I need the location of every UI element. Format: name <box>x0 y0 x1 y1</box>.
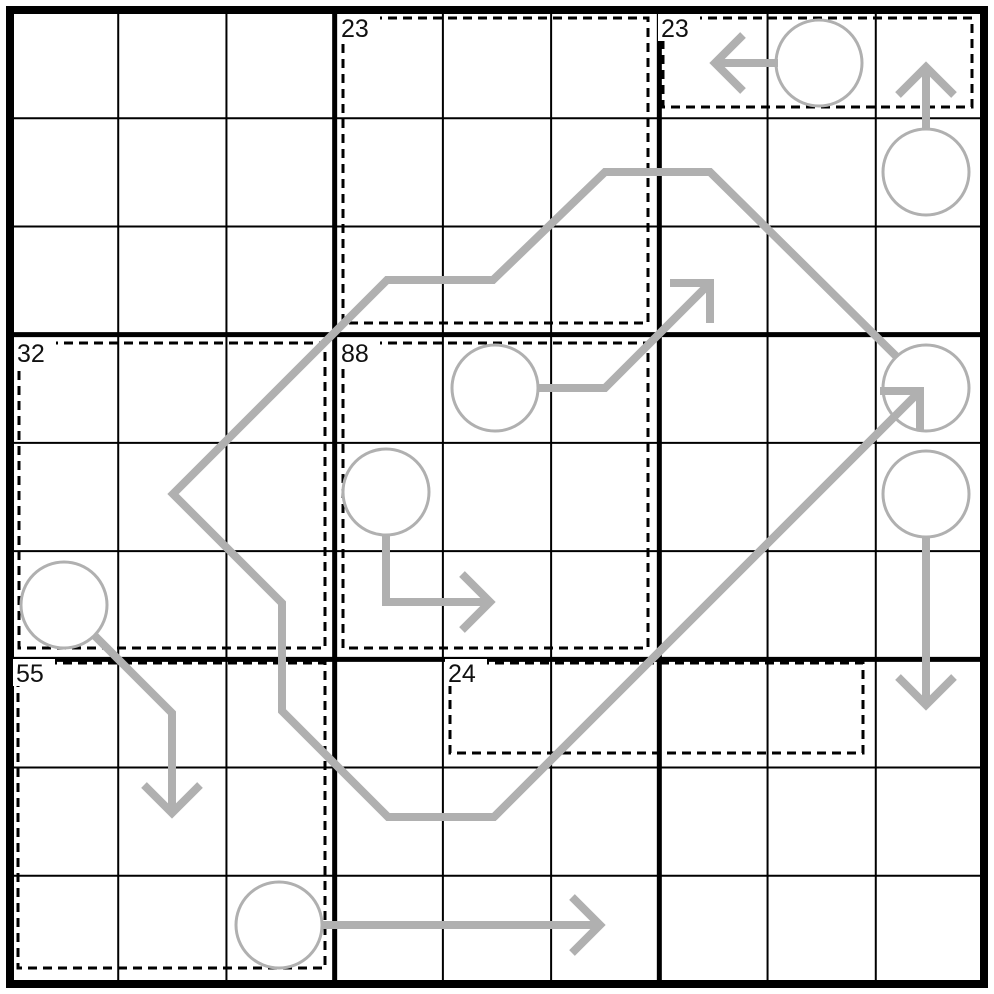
cell-r8c3[interactable] <box>226 768 334 876</box>
cell-r4c6[interactable] <box>551 335 659 443</box>
cell-r9c2[interactable] <box>118 876 226 984</box>
cell-r2c7[interactable] <box>659 118 767 226</box>
cell-r4c8[interactable] <box>768 335 876 443</box>
cell-r4c4[interactable] <box>335 335 443 443</box>
cell-r8c9[interactable] <box>876 768 984 876</box>
cell-r8c1[interactable] <box>10 768 118 876</box>
cell-r1c1[interactable] <box>10 10 118 118</box>
cell-r5c5[interactable] <box>443 443 551 551</box>
cell-r3c2[interactable] <box>118 226 226 334</box>
cell-r5c6[interactable] <box>551 443 659 551</box>
cell-r7c8[interactable] <box>768 659 876 767</box>
cell-r9c3[interactable] <box>226 876 334 984</box>
cell-r7c9[interactable] <box>876 659 984 767</box>
cell-r3c4[interactable] <box>335 226 443 334</box>
cell-r6c9[interactable] <box>876 551 984 659</box>
cell-r2c4[interactable] <box>335 118 443 226</box>
cell-r5c4[interactable] <box>335 443 443 551</box>
cell-r7c3[interactable] <box>226 659 334 767</box>
cell-r9c4[interactable] <box>335 876 443 984</box>
cell-r7c6[interactable] <box>551 659 659 767</box>
cell-r3c3[interactable] <box>226 226 334 334</box>
cell-r5c3[interactable] <box>226 443 334 551</box>
cell-r9c5[interactable] <box>443 876 551 984</box>
cell-r4c7[interactable] <box>659 335 767 443</box>
cell-r4c2[interactable] <box>118 335 226 443</box>
cell-r9c8[interactable] <box>768 876 876 984</box>
cell-r2c9[interactable] <box>876 118 984 226</box>
cell-r6c1[interactable] <box>10 551 118 659</box>
cell-r2c8[interactable] <box>768 118 876 226</box>
cell-r3c7[interactable] <box>659 226 767 334</box>
cell-r6c3[interactable] <box>226 551 334 659</box>
cell-r8c7[interactable] <box>659 768 767 876</box>
cell-r9c1[interactable] <box>10 876 118 984</box>
cell-r5c9[interactable] <box>876 443 984 551</box>
cell-r8c2[interactable] <box>118 768 226 876</box>
cell-r7c7[interactable] <box>659 659 767 767</box>
cell-r3c5[interactable] <box>443 226 551 334</box>
cell-r5c1[interactable] <box>10 443 118 551</box>
cell-r1c7[interactable] <box>659 10 767 118</box>
cell-r2c2[interactable] <box>118 118 226 226</box>
cell-r3c1[interactable] <box>10 226 118 334</box>
cell-r8c6[interactable] <box>551 768 659 876</box>
cell-r6c4[interactable] <box>335 551 443 659</box>
cell-r1c4[interactable] <box>335 10 443 118</box>
cell-r6c8[interactable] <box>768 551 876 659</box>
cell-r6c2[interactable] <box>118 551 226 659</box>
cell-r2c1[interactable] <box>10 118 118 226</box>
cell-r2c5[interactable] <box>443 118 551 226</box>
cell-r1c6[interactable] <box>551 10 659 118</box>
cell-r3c8[interactable] <box>768 226 876 334</box>
cell-r1c2[interactable] <box>118 10 226 118</box>
puzzle-grid-svg: 232332885524 <box>0 0 994 994</box>
cell-r7c1[interactable] <box>10 659 118 767</box>
cell-r2c3[interactable] <box>226 118 334 226</box>
cell-r4c9[interactable] <box>876 335 984 443</box>
cell-r7c4[interactable] <box>335 659 443 767</box>
cell-r1c8[interactable] <box>768 10 876 118</box>
cell-r3c6[interactable] <box>551 226 659 334</box>
cell-r5c7[interactable] <box>659 443 767 551</box>
cell-r7c2[interactable] <box>118 659 226 767</box>
cell-r6c5[interactable] <box>443 551 551 659</box>
cell-r5c2[interactable] <box>118 443 226 551</box>
cell-r6c6[interactable] <box>551 551 659 659</box>
sudoku-puzzle-page: 232332885524 <box>0 0 994 994</box>
cell-r1c5[interactable] <box>443 10 551 118</box>
cell-r4c1[interactable] <box>10 335 118 443</box>
cell-r9c7[interactable] <box>659 876 767 984</box>
cell-r7c5[interactable] <box>443 659 551 767</box>
cell-r8c4[interactable] <box>335 768 443 876</box>
cell-r4c5[interactable] <box>443 335 551 443</box>
cell-r9c9[interactable] <box>876 876 984 984</box>
cell-r3c9[interactable] <box>876 226 984 334</box>
cell-r1c3[interactable] <box>226 10 334 118</box>
cell-r6c7[interactable] <box>659 551 767 659</box>
cell-r2c6[interactable] <box>551 118 659 226</box>
cell-r1c9[interactable] <box>876 10 984 118</box>
cell-r8c8[interactable] <box>768 768 876 876</box>
cell-r4c3[interactable] <box>226 335 334 443</box>
cell-r9c6[interactable] <box>551 876 659 984</box>
cell-r5c8[interactable] <box>768 443 876 551</box>
cell-r8c5[interactable] <box>443 768 551 876</box>
